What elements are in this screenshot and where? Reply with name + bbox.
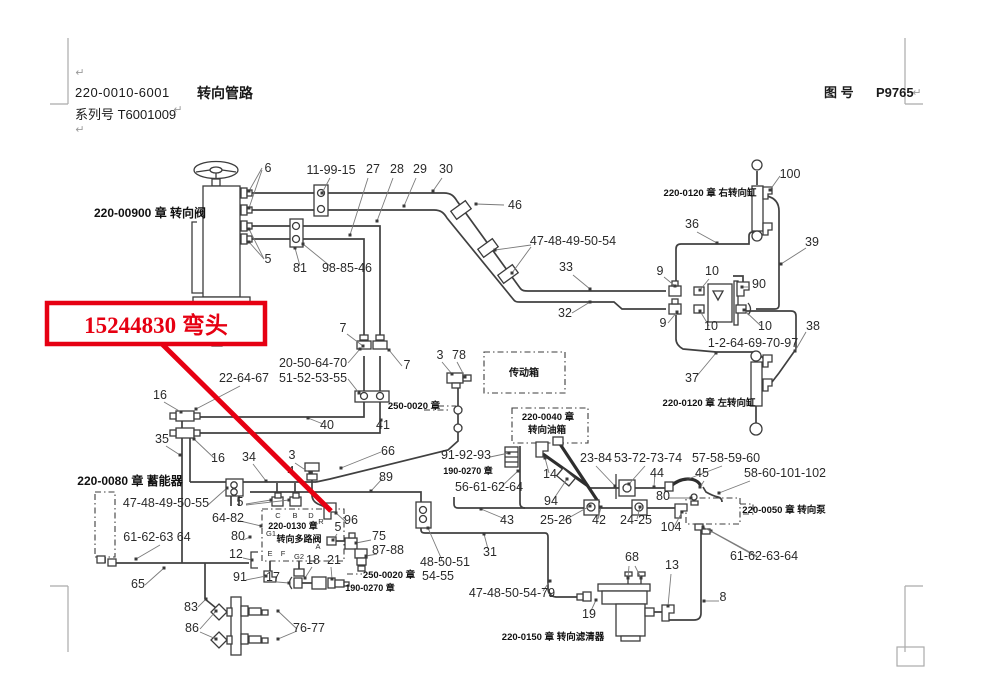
- leader-dot: [614, 485, 617, 488]
- leader-dot: [249, 536, 252, 539]
- hose-57: [670, 479, 701, 487]
- leader-dot: [508, 452, 511, 455]
- leader-dot: [600, 506, 603, 509]
- chapter-label: 220-0040 章: [522, 411, 575, 423]
- paragraph-mark: ↵: [75, 124, 84, 136]
- part-label: 21: [327, 553, 341, 567]
- bottom-manifold: [211, 597, 268, 655]
- part-label: 42: [592, 513, 606, 527]
- leader-dot: [653, 486, 656, 489]
- leader-line: [770, 176, 780, 190]
- part-label: 98-85-46: [322, 261, 372, 275]
- chapter-label: 220-0120 章 右转向缸: [664, 187, 757, 199]
- part-label: 5: [237, 495, 244, 509]
- part-label: 7: [340, 321, 347, 335]
- leader-dot: [288, 582, 291, 585]
- document-page: 220-0010-6001 转向管路 系列号 T6001009 图 号 P976…: [0, 0, 986, 682]
- part-label: 80: [656, 489, 670, 503]
- part-label: 80: [231, 529, 245, 543]
- part-label: 23-84: [580, 451, 612, 465]
- leader-dot: [718, 492, 721, 495]
- part-label: 10: [758, 319, 772, 333]
- leader-dot: [135, 558, 138, 561]
- figure-label: 图 号: [824, 85, 854, 100]
- leader-dot: [628, 483, 631, 486]
- leader-dot: [288, 499, 291, 502]
- corner-box: [897, 647, 924, 666]
- leader-dot: [321, 192, 324, 195]
- leader-dot: [270, 499, 273, 502]
- page-header: 220-0010-6001 转向管路 系列号 T6001009 图 号 P976…: [75, 85, 914, 122]
- leader-dot: [475, 203, 478, 206]
- leader-dot: [589, 301, 592, 304]
- part-label: 58-60-101-102: [744, 466, 826, 480]
- part-label: 51-52-53-55: [279, 371, 347, 385]
- part-label: 9: [657, 264, 664, 278]
- leader-line: [331, 567, 332, 579]
- leader-line: [572, 302, 590, 313]
- serial-line: 系列号 T6001009: [75, 107, 176, 122]
- leader-line: [200, 611, 216, 629]
- part-label: 3: [437, 348, 444, 362]
- leader-dot: [480, 508, 483, 511]
- leader-dot: [370, 490, 373, 493]
- clamp-81: [290, 219, 303, 247]
- part-label: 31: [483, 545, 497, 559]
- leader-dot: [451, 373, 454, 376]
- leader-dot: [248, 190, 251, 193]
- part-label: 56-61-62-64: [455, 480, 523, 494]
- leader-dot: [248, 207, 251, 210]
- part-label: 1-2-64-69-70-97: [708, 336, 798, 350]
- chapter-label: 220-0080 章 蓄能器: [77, 473, 183, 488]
- leader-dot: [163, 567, 166, 570]
- part-label: 66: [381, 444, 395, 458]
- part-label: 96: [344, 513, 358, 527]
- chapter-label: 190-0270 章: [443, 465, 493, 476]
- chapter-label: 220-0150 章 转向滤清器: [502, 631, 605, 643]
- chapter-label: 传动箱: [508, 366, 539, 379]
- leader-dot: [358, 392, 361, 395]
- part-label: 18: [306, 553, 320, 567]
- paragraph-mark: ↵: [75, 67, 84, 79]
- part-label: 6: [265, 161, 272, 175]
- part-label: 83: [184, 600, 198, 614]
- part-label: 29: [413, 162, 427, 176]
- leader-line: [596, 466, 615, 486]
- chapter-label: 250-0020 章: [363, 569, 416, 581]
- port-letter: D: [308, 511, 314, 520]
- part-label: 61-62-63-64: [730, 549, 798, 563]
- leader-line: [166, 446, 180, 455]
- port-letter: G2: [294, 552, 304, 561]
- part-label: 11-99-15: [306, 163, 355, 177]
- part-label: 28: [390, 162, 404, 176]
- steering-wheel: [194, 162, 238, 187]
- leader-line: [356, 540, 371, 543]
- part-label: 13: [665, 558, 679, 572]
- leader-dot: [699, 310, 702, 313]
- part-label: 22-64-67: [219, 371, 269, 385]
- leader-line: [200, 632, 216, 639]
- leader-dot: [251, 559, 254, 562]
- leader-dot: [335, 512, 338, 515]
- leader-dot: [294, 247, 297, 250]
- port-letter: B: [292, 511, 297, 520]
- leader-dot: [277, 638, 280, 641]
- leader-line: [719, 481, 750, 493]
- leader-dot: [674, 285, 677, 288]
- leader-dot: [483, 533, 486, 536]
- leader-dot: [260, 525, 263, 528]
- leader-line: [249, 168, 262, 191]
- part-label: 44: [650, 466, 664, 480]
- leader-line: [145, 568, 164, 585]
- part-label: 16: [153, 388, 167, 402]
- leader-line: [476, 204, 504, 205]
- part-label: 35: [155, 432, 169, 446]
- part-label: 87-88: [372, 543, 404, 557]
- leader-dot: [544, 457, 547, 460]
- leader-dot: [699, 486, 702, 489]
- leader-dot: [681, 511, 684, 514]
- leader-dot: [215, 610, 218, 613]
- part-label: 40: [320, 418, 334, 432]
- leader-line: [433, 178, 442, 191]
- leader-line: [696, 353, 716, 377]
- part-label: 64-82: [212, 511, 244, 525]
- fitting-cluster-16: [170, 411, 200, 438]
- part-label: 89: [379, 470, 393, 484]
- part-label: 37: [685, 371, 699, 385]
- part-label: 33: [559, 260, 573, 274]
- leader-dot: [226, 487, 229, 490]
- leader-dot: [180, 411, 183, 414]
- leader-dot: [699, 289, 702, 292]
- leader-dot: [687, 478, 690, 481]
- chapter-label: 190-0270 章: [345, 582, 395, 593]
- leader-dot: [304, 577, 307, 580]
- part-label: 17: [266, 570, 280, 584]
- part-label: 100: [780, 167, 801, 181]
- part-label: 104: [661, 520, 682, 534]
- chapter-label: 220-00900 章 转向阀: [94, 205, 206, 220]
- diagonal-clamps: [451, 201, 518, 284]
- leader-dot: [359, 348, 362, 351]
- part-label: 54-55: [422, 569, 454, 583]
- leader-dot: [780, 263, 783, 266]
- leader-dot: [376, 220, 379, 223]
- left-steering-cylinder: [750, 351, 772, 435]
- leader-dot: [667, 605, 670, 608]
- leader-dot: [362, 345, 365, 348]
- leader-dot: [716, 242, 719, 245]
- leader-line: [629, 466, 645, 484]
- part-label: 9: [660, 316, 667, 330]
- part-label: 20-50-64-70: [279, 356, 347, 370]
- part-label: 25-26: [540, 513, 572, 527]
- leader-dot: [640, 577, 643, 580]
- paragraph-mark: ↵: [912, 87, 921, 99]
- leader-line: [389, 350, 402, 366]
- leader-line: [668, 574, 671, 606]
- part-label: 7: [404, 358, 411, 372]
- leader-dot: [432, 190, 435, 193]
- part-label: 3: [289, 448, 296, 462]
- leader-dot: [741, 286, 744, 289]
- part-label: 10: [704, 319, 718, 333]
- part-label: 5: [335, 520, 342, 534]
- port-letter: G1: [266, 529, 276, 538]
- part-label: 47-48-49-50-54: [530, 234, 616, 248]
- tee-3-78: [447, 373, 471, 432]
- leader-dot: [511, 272, 514, 275]
- tank-fittings: [505, 437, 575, 486]
- right-steering-cylinder: [752, 160, 772, 241]
- part-label: 5: [265, 252, 272, 266]
- leader-line: [404, 178, 416, 206]
- callout-text: 15244830 弯头: [84, 312, 228, 338]
- port-letter: C: [275, 511, 281, 520]
- leader-dot: [277, 610, 280, 613]
- leader-line: [164, 402, 181, 412]
- leader-line: [208, 488, 227, 505]
- leader-dot: [340, 467, 343, 470]
- part-label: 68: [625, 550, 639, 564]
- leader-dot: [427, 527, 430, 530]
- part-label: 53-72-73-74: [614, 451, 682, 465]
- leader-dot: [589, 505, 592, 508]
- part-label: 94: [544, 494, 558, 508]
- part-label: 16: [211, 451, 225, 465]
- leader-dot: [388, 349, 391, 352]
- leader-dot: [702, 526, 705, 529]
- leader-dot: [205, 598, 208, 601]
- leader-dot: [302, 243, 305, 246]
- leader-line: [512, 247, 531, 273]
- leader-dot: [307, 417, 310, 420]
- part-label: 46: [508, 198, 522, 212]
- leader-dot: [265, 480, 268, 483]
- part-label: 38: [806, 319, 820, 333]
- leader-dot: [215, 638, 218, 641]
- part-label: 90: [752, 277, 766, 291]
- leader-dot: [566, 478, 569, 481]
- leader-dot: [365, 555, 368, 558]
- clamp-11-99-15: [314, 185, 328, 216]
- leader-line: [341, 452, 381, 468]
- part-label: 34: [242, 450, 256, 464]
- part-label: 48-50-51: [420, 555, 470, 569]
- doc-number: 220-0010-6001: [75, 85, 170, 100]
- leader-dot: [639, 506, 642, 509]
- part-label: 27: [366, 162, 380, 176]
- diagram-canvas: 220-0010-6001 转向管路 系列号 T6001009 图 号 P976…: [0, 0, 986, 682]
- part-label: 30: [439, 162, 453, 176]
- leader-line: [697, 232, 717, 243]
- part-label: 45: [695, 466, 709, 480]
- part-label: 8: [720, 590, 727, 604]
- leader-dot: [676, 311, 679, 314]
- leader-dot: [349, 234, 352, 237]
- part-label: 39: [805, 235, 819, 249]
- part-label: 91-92-93: [441, 448, 491, 462]
- leader-dot: [309, 472, 312, 475]
- leader-line: [305, 567, 312, 578]
- leader-line: [246, 576, 266, 580]
- paragraph-mark: ↵: [173, 104, 182, 116]
- leader-line: [348, 379, 359, 393]
- part-label: 36: [685, 217, 699, 231]
- part-label: 75: [372, 529, 386, 543]
- part-label: 61-62-63 64: [123, 530, 190, 544]
- leader-dot: [193, 438, 196, 441]
- leader-dot: [517, 470, 520, 473]
- port-letter: E: [267, 549, 272, 558]
- leader-dot: [355, 542, 358, 545]
- part-label: 19: [582, 607, 596, 621]
- leader-dot: [595, 599, 598, 602]
- leader-line: [377, 178, 393, 221]
- leader-line: [136, 545, 160, 559]
- leader-line: [249, 170, 262, 208]
- chapter-label: 250-0020 章: [388, 400, 441, 412]
- port-letter: A: [315, 542, 320, 551]
- part-label: 91: [233, 570, 247, 584]
- leader-dot: [464, 376, 467, 379]
- clamp-47-48-49-50-55: [226, 479, 243, 496]
- leader-dot: [627, 577, 630, 580]
- figure-number: P9765: [876, 85, 914, 100]
- leader-dot: [703, 600, 706, 603]
- leader-dot: [332, 539, 335, 542]
- part-label: 24-25: [620, 513, 652, 527]
- leader-line: [573, 275, 590, 289]
- leader-dot: [769, 189, 772, 192]
- leader-dot: [248, 241, 251, 244]
- part-label: 57-58-59-60: [692, 451, 760, 465]
- chapter-label: 220-0120 章 左转向缸: [663, 397, 756, 409]
- part-label: 47-48-50-54-79: [469, 586, 555, 600]
- leader-line: [253, 464, 266, 481]
- part-label: 32: [558, 306, 572, 320]
- part-label: 12: [229, 547, 243, 561]
- accumulator-box: [95, 492, 115, 557]
- part-label: 43: [500, 513, 514, 527]
- part-label: 47-48-49-50-55: [123, 496, 209, 510]
- leader-dot: [179, 454, 182, 457]
- leader-dot: [403, 205, 406, 208]
- leader-dot: [331, 578, 334, 581]
- leader-dot: [248, 228, 251, 231]
- part-label: 41: [376, 418, 390, 432]
- part-label: 86: [185, 621, 199, 635]
- paragraph-marks-layer: ↵↵↵↵: [75, 67, 921, 136]
- part-label: 10: [705, 264, 719, 278]
- leader-dot: [743, 309, 746, 312]
- part-label: 14: [543, 467, 557, 481]
- leader-dot: [715, 352, 718, 355]
- chapter-label: 转向油箱: [528, 424, 567, 436]
- leader-line: [348, 349, 360, 363]
- leader-dot: [549, 580, 552, 583]
- part-label: 81: [293, 261, 307, 275]
- part-label: 78: [452, 348, 466, 362]
- part-label: 65: [131, 577, 145, 591]
- clamp-48-50-51: [416, 502, 431, 528]
- port-letter: F: [281, 549, 286, 558]
- leader-dot: [589, 288, 592, 291]
- leader-dot: [494, 249, 497, 252]
- leader-line: [781, 248, 806, 264]
- leader-dot: [195, 408, 198, 411]
- chapter-label: 220-0050 章 转向泵: [742, 504, 826, 516]
- leader-dot: [690, 497, 693, 500]
- doc-title: 转向管路: [197, 85, 254, 101]
- port-letter: R: [318, 517, 324, 526]
- part-label: 76-77: [293, 621, 325, 635]
- leader-line: [495, 245, 531, 250]
- leader-line: [442, 362, 452, 374]
